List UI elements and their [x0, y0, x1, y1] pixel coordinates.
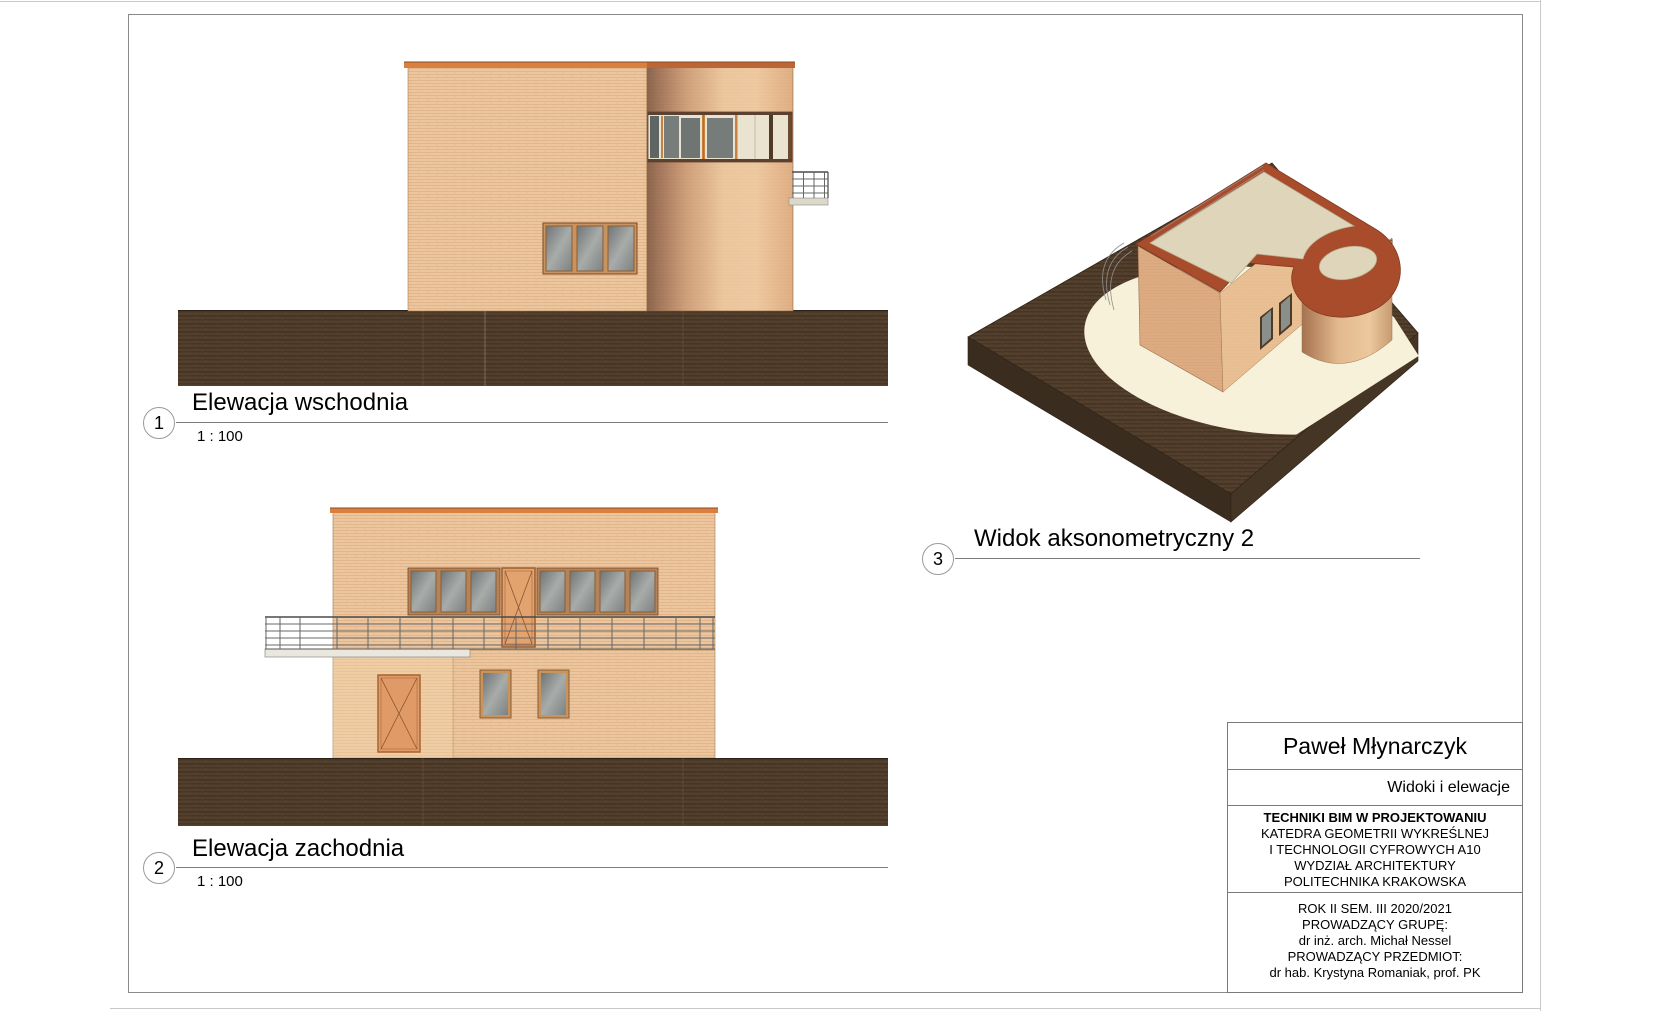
course-line: PROWADZĄCY PRZEDMIOT: — [1228, 949, 1522, 965]
view1-callout-line — [176, 422, 888, 423]
course-line: dr hab. Krystyna Romaniak, prof. PK — [1228, 965, 1522, 981]
view3-title: Widok aksonometryczny 2 — [974, 525, 1254, 553]
paper-edge-top — [0, 1, 1541, 2]
view3-number: 3 — [933, 549, 943, 570]
institution-line: WYDZIAŁ ARCHITEKTURY — [1228, 858, 1522, 874]
institution-line: KATEDRA GEOMETRII WYKREŚLNEJ — [1228, 826, 1522, 842]
view2-number: 2 — [154, 858, 164, 879]
course-line: PROWADZĄCY GRUPĘ: — [1228, 917, 1522, 933]
view3-callout-circle[interactable]: 3 — [922, 543, 954, 575]
institution-line: POLITECHNIKA KRAKOWSKA — [1228, 874, 1522, 890]
course-line: dr inż. arch. Michał Nessel — [1228, 933, 1522, 949]
view1-title: Elewacja wschodnia — [192, 389, 408, 417]
view1-scale: 1 : 100 — [197, 428, 243, 445]
view3-callout-line — [955, 558, 1420, 559]
title-block: Paweł Młynarczyk Widoki i elewacje TECHN… — [1227, 722, 1523, 993]
institution-line: I TECHNOLOGII CYFROWYCH A10 — [1228, 842, 1522, 858]
title-block-course-info: ROK II SEM. III 2020/2021 PROWADZĄCY GRU… — [1228, 893, 1522, 992]
view1-callout-circle[interactable]: 1 — [143, 407, 175, 439]
view2-callout-circle[interactable]: 2 — [143, 852, 175, 884]
title-block-sheet-name: Widoki i elewacje — [1228, 770, 1522, 806]
course-title-line: TECHNIKI BIM W PROJEKTOWANIU — [1228, 810, 1522, 826]
paper-edge-right — [1540, 0, 1541, 1011]
title-block-institution: TECHNIKI BIM W PROJEKTOWANIU KATEDRA GEO… — [1228, 806, 1522, 893]
view2-title: Elewacja zachodnia — [192, 835, 404, 863]
view2-scale: 1 : 100 — [197, 873, 243, 890]
title-block-author: Paweł Młynarczyk — [1228, 723, 1522, 770]
view2-callout-line — [176, 867, 888, 868]
paper-edge-bottom — [110, 1008, 1541, 1009]
course-line: ROK II SEM. III 2020/2021 — [1228, 901, 1522, 917]
view1-number: 1 — [154, 413, 164, 434]
